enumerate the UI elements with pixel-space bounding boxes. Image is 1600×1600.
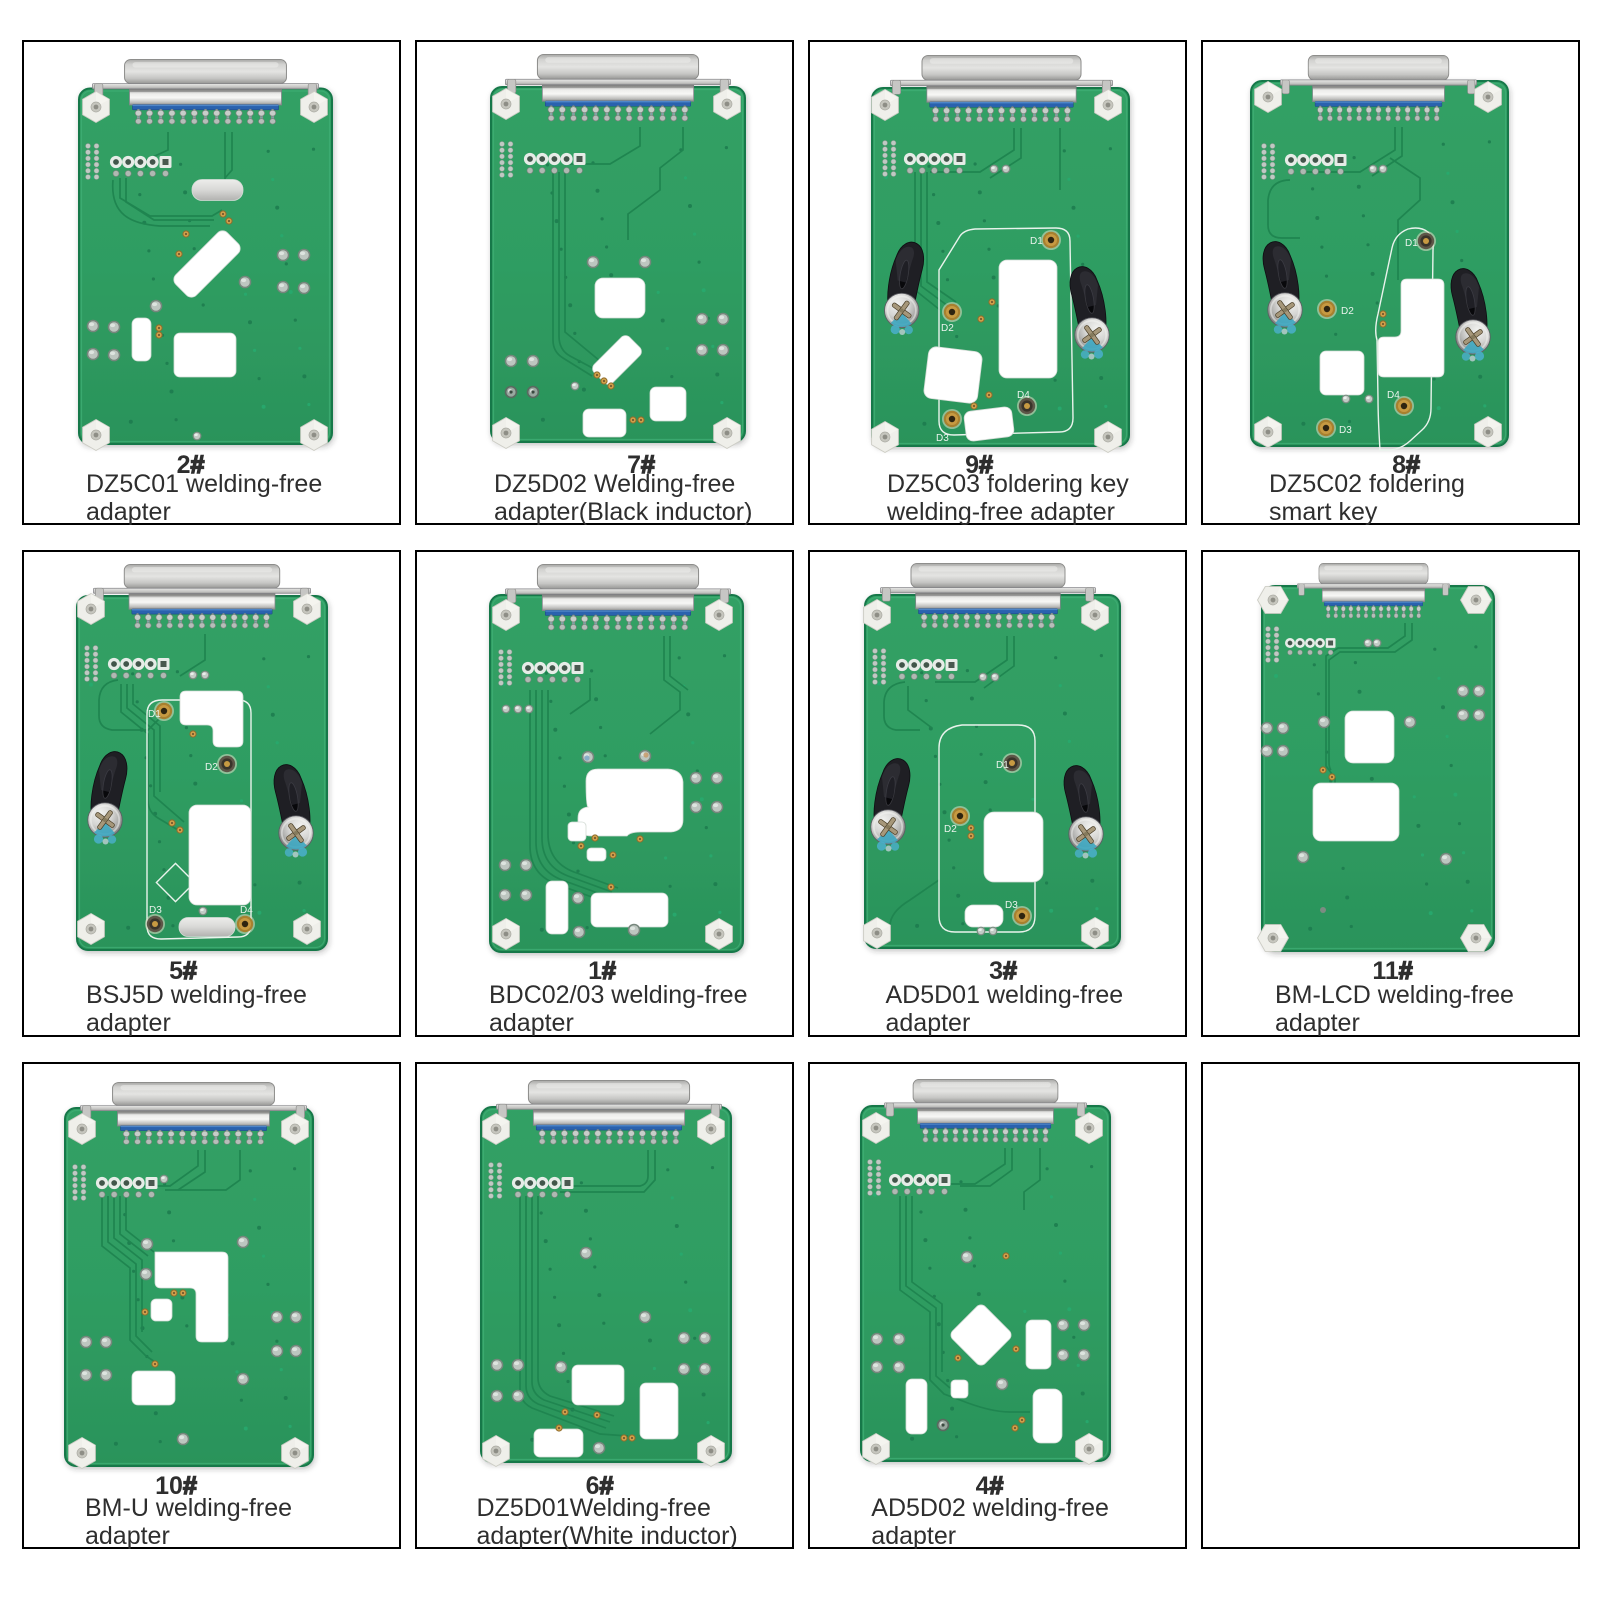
svg-text:D4: D4 [1017,390,1030,401]
svg-text:D3: D3 [936,433,949,444]
svg-text:D1: D1 [996,760,1009,771]
svg-text:D4: D4 [240,905,253,916]
svg-text:D2: D2 [205,762,218,773]
svg-text:D3: D3 [1339,425,1352,436]
svg-text:D2: D2 [1341,306,1354,317]
svg-text:D2: D2 [944,824,957,835]
svg-text:D1: D1 [1405,238,1418,249]
svg-text:D3: D3 [149,905,162,916]
svg-text:D1: D1 [148,709,161,720]
svg-text:D2: D2 [941,323,954,334]
svg-text:D3: D3 [1005,900,1018,911]
svg-text:D4: D4 [1387,390,1400,401]
svg-text:D1: D1 [1030,236,1043,247]
